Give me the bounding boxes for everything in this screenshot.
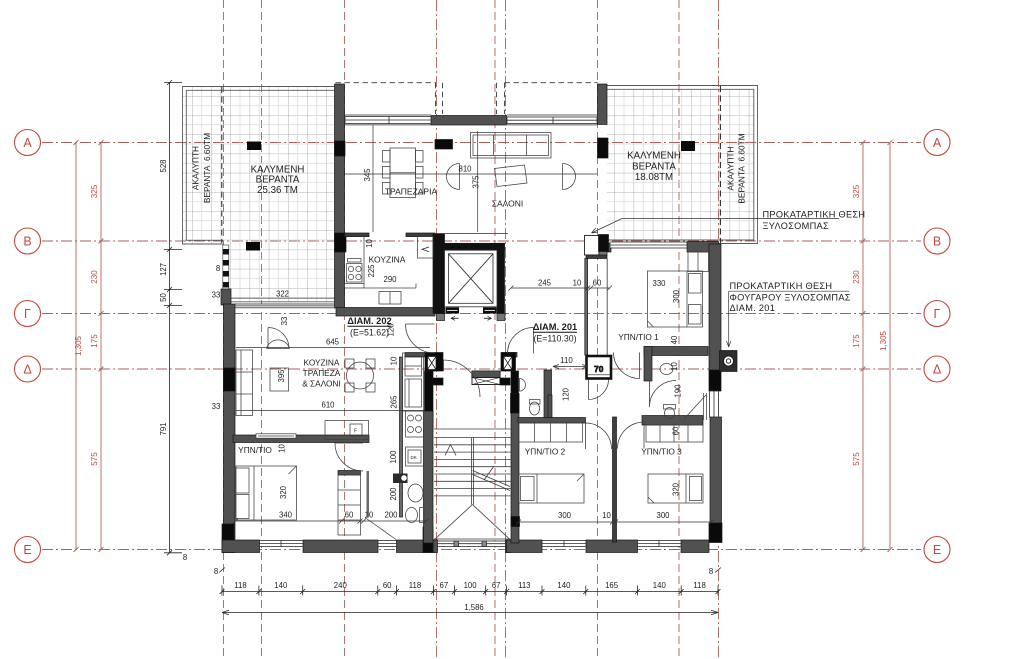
svg-text:ΑΚΑΛΥΠΤΗ: ΑΚΑΛΥΠΤΗ xyxy=(191,146,201,190)
svg-text:10: 10 xyxy=(602,511,611,520)
svg-text:8: 8 xyxy=(709,567,713,576)
svg-text:33: 33 xyxy=(212,291,221,300)
svg-text:25.36 ΤΜ: 25.36 ΤΜ xyxy=(257,185,298,196)
svg-text:ΚΑΛΥΜΕΝΗ: ΚΑΛΥΜΕΝΗ xyxy=(251,164,305,175)
svg-text:E: E xyxy=(933,543,941,557)
svg-text:ΥΠΝ/ΤΙΟ 3: ΥΠΝ/ΤΙΟ 3 xyxy=(641,447,682,457)
svg-text:230: 230 xyxy=(852,270,861,284)
svg-text:395: 395 xyxy=(277,369,286,383)
svg-text:322: 322 xyxy=(276,289,289,298)
svg-text:33: 33 xyxy=(212,402,221,411)
svg-text:320: 320 xyxy=(672,482,681,496)
svg-text:300: 300 xyxy=(672,289,681,303)
svg-text:120: 120 xyxy=(562,387,571,401)
svg-text:ΣΑΛΟΝΙ: ΣΑΛΟΝΙ xyxy=(492,199,524,209)
svg-text:E: E xyxy=(23,543,31,557)
svg-text:645: 645 xyxy=(326,338,340,347)
svg-text:DK: DK xyxy=(411,455,417,460)
svg-text:610: 610 xyxy=(321,401,335,410)
svg-text:140: 140 xyxy=(274,581,288,590)
svg-text:60: 60 xyxy=(593,279,602,288)
svg-text:810: 810 xyxy=(458,165,472,174)
svg-text:ΔΙΑΜ. 202: ΔΙΑΜ. 202 xyxy=(347,316,391,326)
svg-text:10: 10 xyxy=(573,279,582,288)
svg-text:10: 10 xyxy=(365,239,374,248)
svg-text:127: 127 xyxy=(159,263,168,276)
svg-text:ΚΑΛΥΜΕΝΗ: ΚΑΛΥΜΕΝΗ xyxy=(627,151,681,162)
svg-text:ΦΟΥΓΑΡΟΥ ΞΥΛΟΣΟΜΠΑΣ: ΦΟΥΓΑΡΟΥ ΞΥΛΟΣΟΜΠΑΣ xyxy=(730,292,851,302)
svg-text:ΥΠΝ/ΤΙΟ 1: ΥΠΝ/ΤΙΟ 1 xyxy=(618,332,659,342)
svg-text:67: 67 xyxy=(440,581,449,590)
svg-text:& ΣΑΛΟΝΙ: & ΣΑΛΟΝΙ xyxy=(302,379,341,389)
svg-text:(Ε=51.62): (Ε=51.62) xyxy=(350,328,389,338)
svg-text:140: 140 xyxy=(557,581,571,590)
svg-text:375: 375 xyxy=(472,175,481,189)
svg-text:60: 60 xyxy=(383,581,392,590)
svg-text:575: 575 xyxy=(90,452,99,466)
svg-text:67: 67 xyxy=(492,581,501,590)
svg-text:60: 60 xyxy=(672,426,681,435)
svg-text:8: 8 xyxy=(216,264,220,273)
svg-text:190: 190 xyxy=(674,384,683,398)
svg-text:200: 200 xyxy=(384,511,398,520)
svg-text:240: 240 xyxy=(334,581,348,590)
svg-text:265: 265 xyxy=(390,395,399,409)
svg-text:A: A xyxy=(933,136,942,150)
svg-text:1,586: 1,586 xyxy=(464,603,484,612)
svg-text:200: 200 xyxy=(389,487,398,501)
svg-text:33: 33 xyxy=(280,317,289,326)
svg-text:Γ: Γ xyxy=(934,307,941,321)
svg-text:10: 10 xyxy=(670,362,679,371)
svg-text:Δ: Δ xyxy=(933,363,941,377)
svg-text:330: 330 xyxy=(652,279,666,288)
svg-text:ΒΕΡΑΝΤΑ 6.60ΤΜ: ΒΕΡΑΝΤΑ 6.60ΤΜ xyxy=(202,133,212,203)
svg-text:225: 225 xyxy=(367,264,376,278)
svg-text:(Ε=110.30): (Ε=110.30) xyxy=(533,334,576,344)
svg-text:B: B xyxy=(933,235,941,249)
svg-text:B: B xyxy=(23,235,31,249)
svg-text:345: 345 xyxy=(363,168,372,182)
svg-text:ΚΟΥΖΙΝΑ: ΚΟΥΖΙΝΑ xyxy=(304,358,340,368)
svg-text:100: 100 xyxy=(464,581,478,590)
svg-text:40: 40 xyxy=(670,335,679,344)
svg-text:ΒΕΡΑΝΤΑ 6.60ΤΜ: ΒΕΡΑΝΤΑ 6.60ΤΜ xyxy=(737,133,747,203)
svg-text:70: 70 xyxy=(594,364,604,374)
svg-text:1,305: 1,305 xyxy=(879,330,888,351)
svg-text:300: 300 xyxy=(656,511,670,520)
svg-text:ΚΟΥΖΙΝΑ: ΚΟΥΖΙΝΑ xyxy=(369,255,406,265)
svg-text:1,305: 1,305 xyxy=(74,335,83,356)
svg-text:245: 245 xyxy=(538,279,552,288)
svg-text:175: 175 xyxy=(852,334,861,348)
svg-text:ΥΠΝ/ΤΙΟ 2: ΥΠΝ/ΤΙΟ 2 xyxy=(525,447,566,457)
svg-text:10: 10 xyxy=(278,444,287,453)
svg-text:50: 50 xyxy=(159,293,168,302)
svg-text:Γ: Γ xyxy=(24,307,31,321)
svg-text:60: 60 xyxy=(345,511,354,520)
svg-text:118: 118 xyxy=(409,581,421,590)
svg-text:230: 230 xyxy=(90,270,99,284)
svg-text:ΔΙΑΜ. 201: ΔΙΑΜ. 201 xyxy=(533,322,577,332)
svg-text:320: 320 xyxy=(279,485,288,499)
svg-text:100: 100 xyxy=(389,450,398,464)
svg-text:165: 165 xyxy=(605,581,619,590)
svg-text:110: 110 xyxy=(560,356,573,365)
svg-text:113: 113 xyxy=(518,581,530,590)
svg-text:18.08ΤΜ: 18.08ΤΜ xyxy=(635,172,673,183)
svg-text:ΒΕΡΑΝΤΑ: ΒΕΡΑΝΤΑ xyxy=(632,161,676,172)
svg-text:ΠΡΟΚΑΤΑΡΤΙΚΗ ΘΕΣΗ: ΠΡΟΚΑΤΑΡΤΙΚΗ ΘΕΣΗ xyxy=(763,210,866,220)
svg-text:175: 175 xyxy=(90,334,99,348)
svg-text:8: 8 xyxy=(183,553,187,562)
svg-text:8: 8 xyxy=(214,567,218,576)
svg-text:10: 10 xyxy=(390,356,399,365)
svg-text:791: 791 xyxy=(159,422,168,435)
svg-text:Δ: Δ xyxy=(23,363,31,377)
svg-text:ΞΥΛΟΣΟΜΠΑΣ: ΞΥΛΟΣΟΜΠΑΣ xyxy=(763,221,829,231)
svg-text:A: A xyxy=(23,136,32,150)
svg-text:300: 300 xyxy=(558,511,572,520)
svg-text:528: 528 xyxy=(159,159,168,172)
svg-text:ΤΡΑΠΕΖΑ: ΤΡΑΠΕΖΑ xyxy=(303,368,341,378)
svg-text:ΥΠΝ/ΤΙΟ: ΥΠΝ/ΤΙΟ xyxy=(238,445,272,455)
svg-text:575: 575 xyxy=(852,452,861,466)
svg-text:ΑΚΑΛΥΠΤΗ: ΑΚΑΛΥΠΤΗ xyxy=(726,146,736,190)
svg-text:325: 325 xyxy=(90,184,99,198)
svg-text:340: 340 xyxy=(279,511,293,520)
svg-text:10: 10 xyxy=(365,511,374,520)
svg-text:ΤΡΑΠΕΖΑΡΙΑ: ΤΡΑΠΕΖΑΡΙΑ xyxy=(385,187,438,197)
svg-text:290: 290 xyxy=(383,275,397,284)
svg-text:F: F xyxy=(354,429,357,435)
svg-text:ΠΡΟΚΑΤΑΡΤΙΚΗ ΘΕΣΗ: ΠΡΟΚΑΤΑΡΤΙΚΗ ΘΕΣΗ xyxy=(730,281,833,291)
svg-text:ΔΙΑΜ. 201: ΔΙΑΜ. 201 xyxy=(730,303,776,313)
svg-text:140: 140 xyxy=(653,581,667,590)
svg-text:118: 118 xyxy=(693,581,705,590)
svg-text:118: 118 xyxy=(234,581,246,590)
svg-text:325: 325 xyxy=(852,184,861,198)
